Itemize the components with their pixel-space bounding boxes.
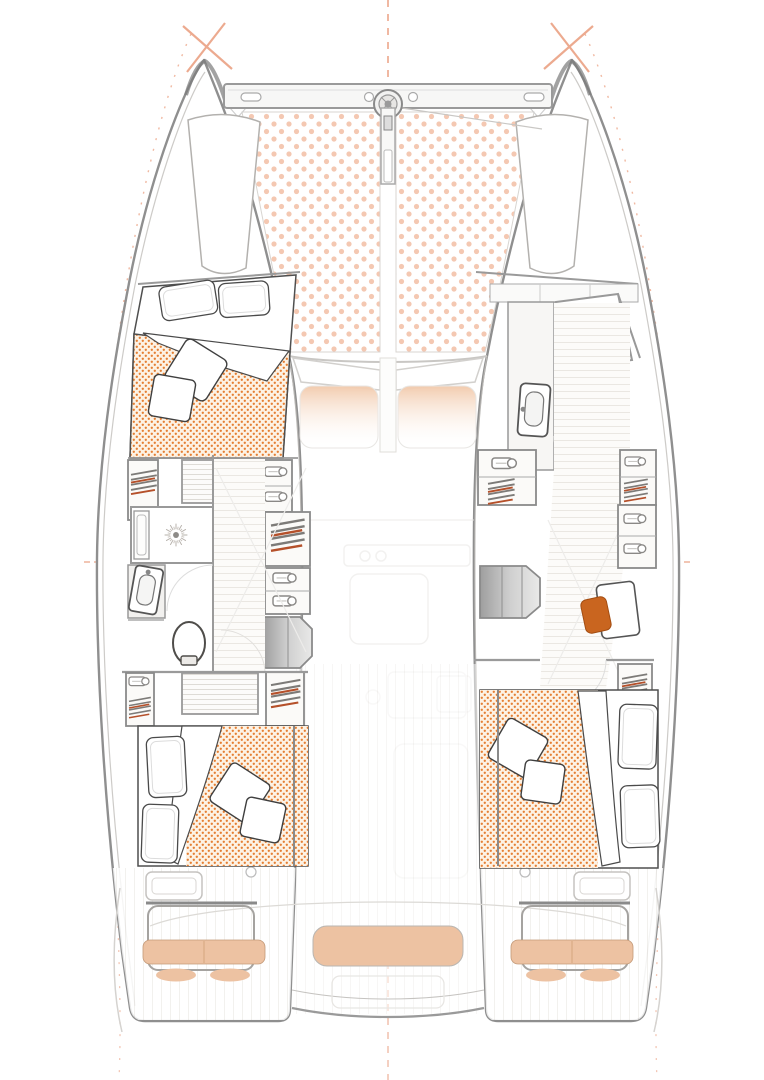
starboard-aft-cabin <box>474 660 660 868</box>
pillow-icon <box>141 804 179 863</box>
tambour-cabinet <box>182 673 258 714</box>
port-hull-interior <box>122 272 312 866</box>
cushion-icon <box>148 374 197 423</box>
pillow-icon <box>146 736 187 798</box>
forward-seat-starboard <box>398 386 476 448</box>
pillow-icon <box>618 704 658 769</box>
aft-cockpit-bench <box>313 926 463 966</box>
forward-seat-port <box>300 386 378 448</box>
port-wardrobe-column <box>263 512 312 726</box>
companionway-steps <box>480 566 540 618</box>
catamaran-deck-plan <box>0 0 764 1080</box>
sink-icon <box>517 383 551 437</box>
bowsprit <box>381 108 395 184</box>
deck-plan-canvas <box>0 0 764 1080</box>
cushion-icon <box>239 796 286 843</box>
port-forward-cabin <box>130 275 296 458</box>
cushion-icon <box>520 759 565 804</box>
pillow-icon <box>620 785 660 848</box>
pillow-icon <box>218 281 270 318</box>
